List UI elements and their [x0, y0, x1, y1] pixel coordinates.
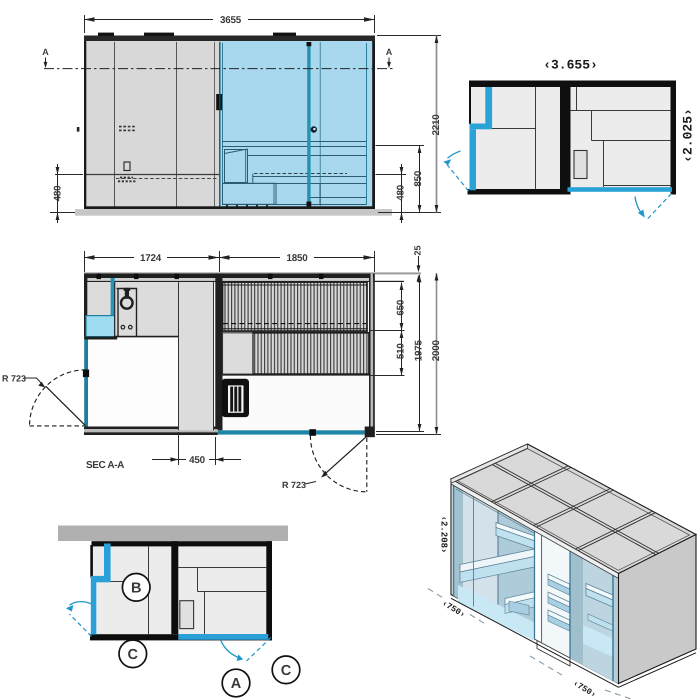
- svg-text:480: 480: [396, 184, 407, 200]
- svg-text:1724: 1724: [140, 253, 162, 264]
- svg-text:650: 650: [395, 299, 406, 315]
- svg-text:850: 850: [413, 170, 424, 186]
- svg-text:R 723: R 723: [2, 374, 26, 384]
- svg-text:450: 450: [189, 455, 205, 466]
- svg-text:SEC A-A: SEC A-A: [86, 460, 124, 471]
- svg-text:A: A: [42, 47, 49, 57]
- svg-text:C: C: [281, 663, 292, 679]
- svg-text:3655: 3655: [220, 15, 242, 26]
- svg-text:‹2.025›: ‹2.025›: [681, 108, 696, 163]
- svg-text:1975: 1975: [413, 339, 424, 361]
- svg-text:510: 510: [395, 343, 406, 359]
- svg-text:A: A: [231, 676, 242, 692]
- svg-text:2210: 2210: [431, 114, 442, 136]
- svg-text:‹3.655›: ‹3.655›: [543, 58, 598, 73]
- svg-text:C: C: [128, 647, 139, 663]
- svg-text:25: 25: [413, 245, 423, 255]
- svg-text:1850: 1850: [287, 253, 309, 264]
- svg-text:2000: 2000: [431, 339, 442, 361]
- svg-text:480: 480: [53, 185, 64, 201]
- svg-text:B: B: [131, 580, 141, 596]
- svg-text:R 723: R 723: [282, 480, 306, 490]
- svg-text:‹2.208›: ‹2.208›: [439, 516, 449, 554]
- svg-text:A: A: [386, 47, 393, 57]
